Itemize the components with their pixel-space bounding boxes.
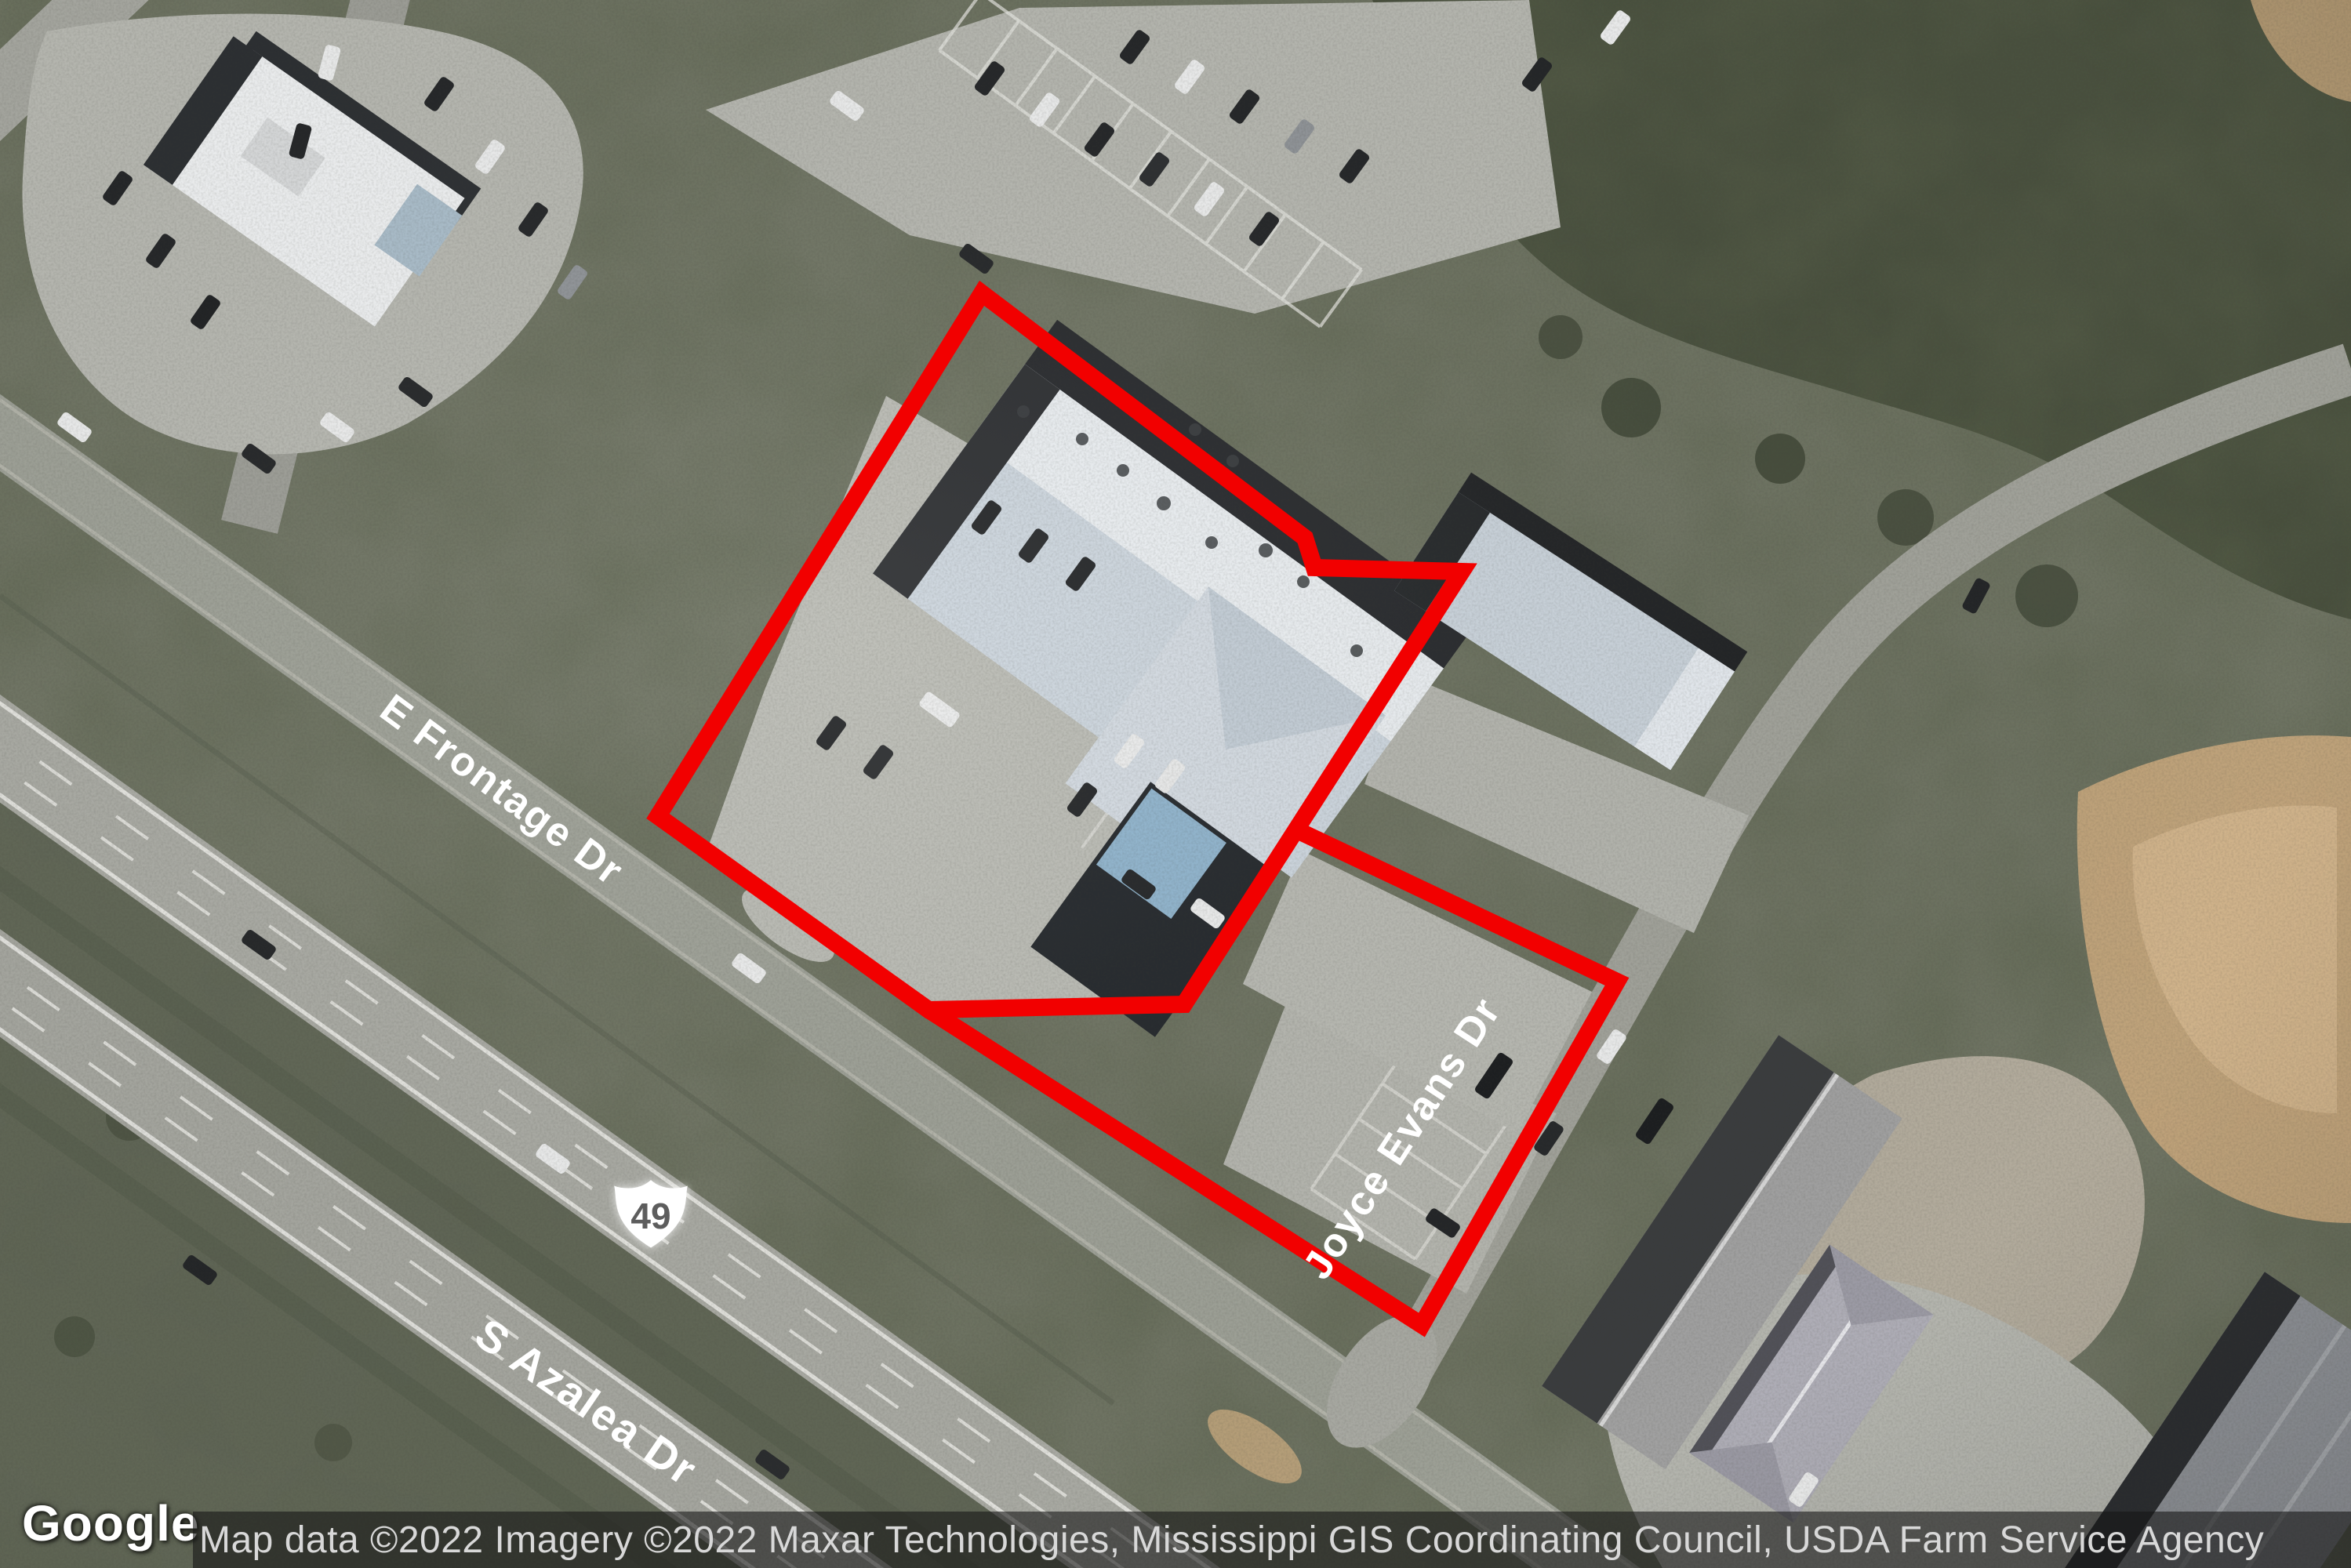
route-number: 49 xyxy=(610,1177,692,1252)
attribution-text: Map data ©2022 Imagery ©2022 Maxar Techn… xyxy=(199,1519,2264,1562)
satellite-imagery xyxy=(0,0,2351,1568)
us-49-highway-shield: 49 xyxy=(610,1177,692,1252)
map-viewport[interactable]: E Frontage Dr S Azalea Dr Joyce Evans Dr… xyxy=(0,0,2351,1568)
google-logo[interactable]: Google xyxy=(22,1494,199,1552)
map-attribution: Map data ©2022 Imagery ©2022 Maxar Techn… xyxy=(193,1512,2351,1568)
